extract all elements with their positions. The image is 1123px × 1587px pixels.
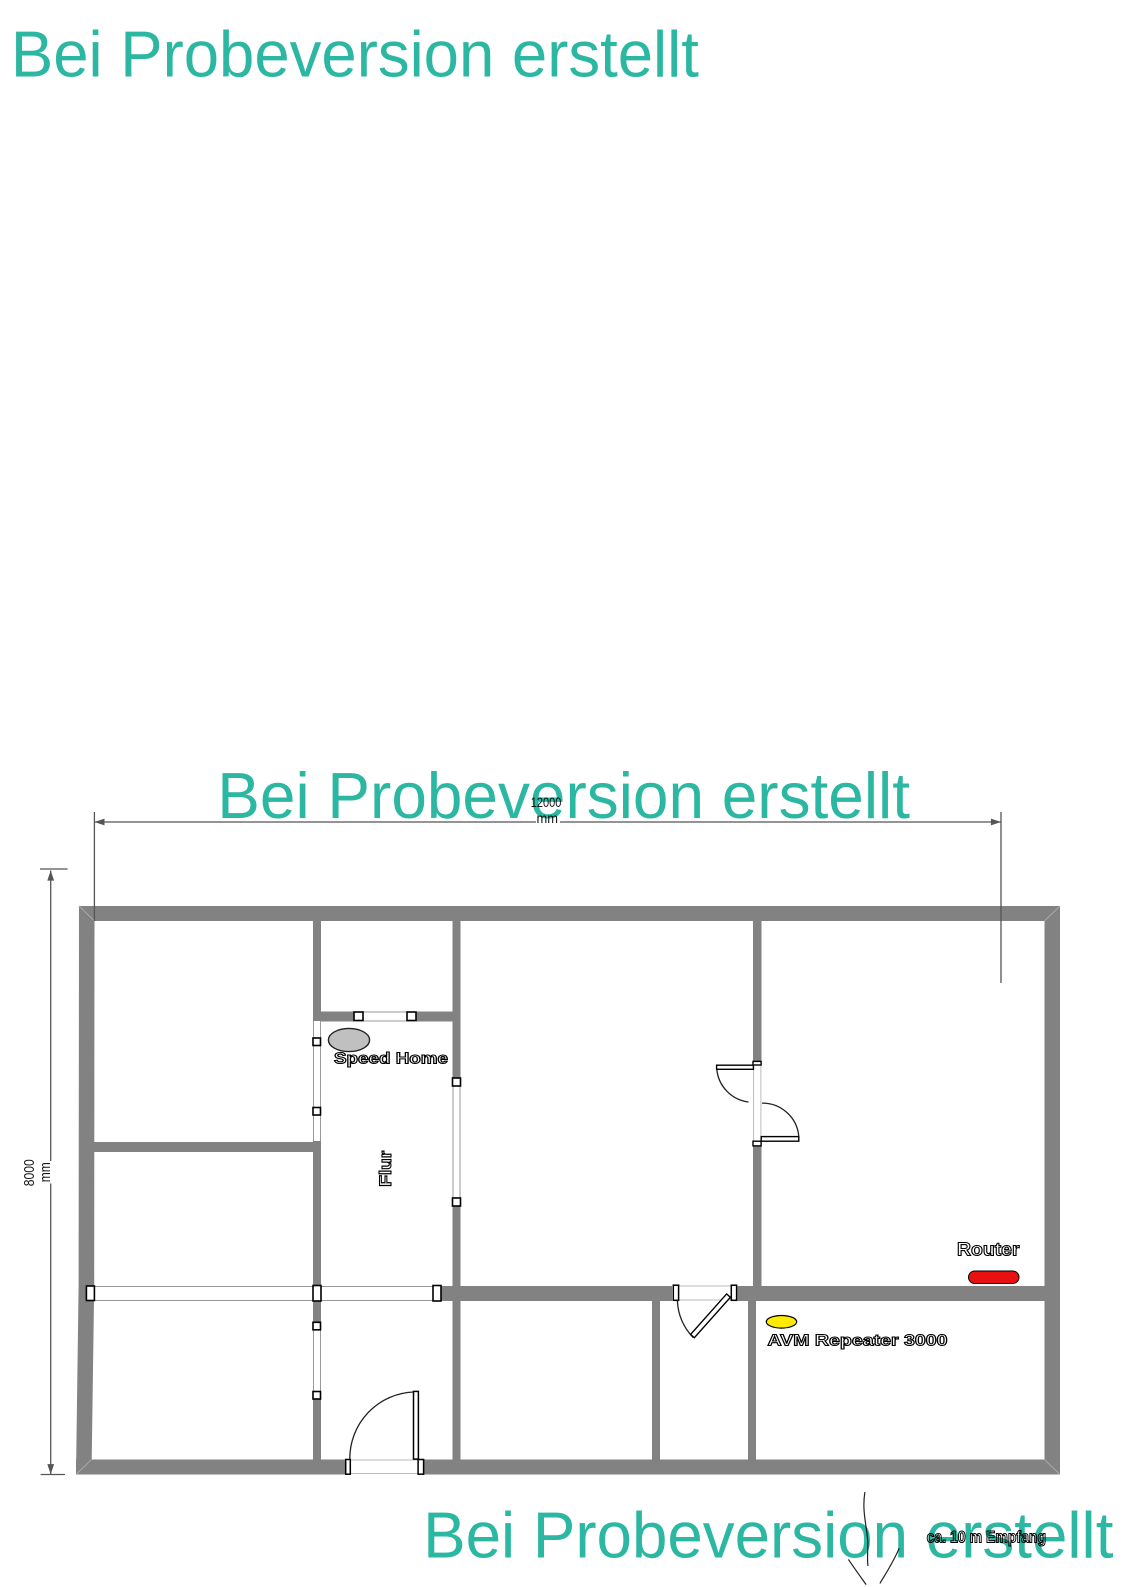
svg-text:Speed Home: Speed Home [334, 1051, 448, 1068]
svg-text:Bei Probeversion erstellt: Bei Probeversion erstellt [217, 760, 910, 832]
svg-text:Router: Router [957, 1239, 1020, 1260]
svg-text:8000: 8000 [22, 1159, 38, 1186]
svg-text:Bei Probeversion erstellt: Bei Probeversion erstellt [11, 19, 699, 91]
svg-text:AVM Repeater 3000: AVM Repeater 3000 [768, 1332, 948, 1349]
svg-text:Bei Probeversion erstellt: Bei Probeversion erstellt [423, 1500, 1113, 1572]
svg-text:mm: mm [38, 1162, 54, 1182]
svg-text:Flur: Flur [376, 1150, 395, 1186]
